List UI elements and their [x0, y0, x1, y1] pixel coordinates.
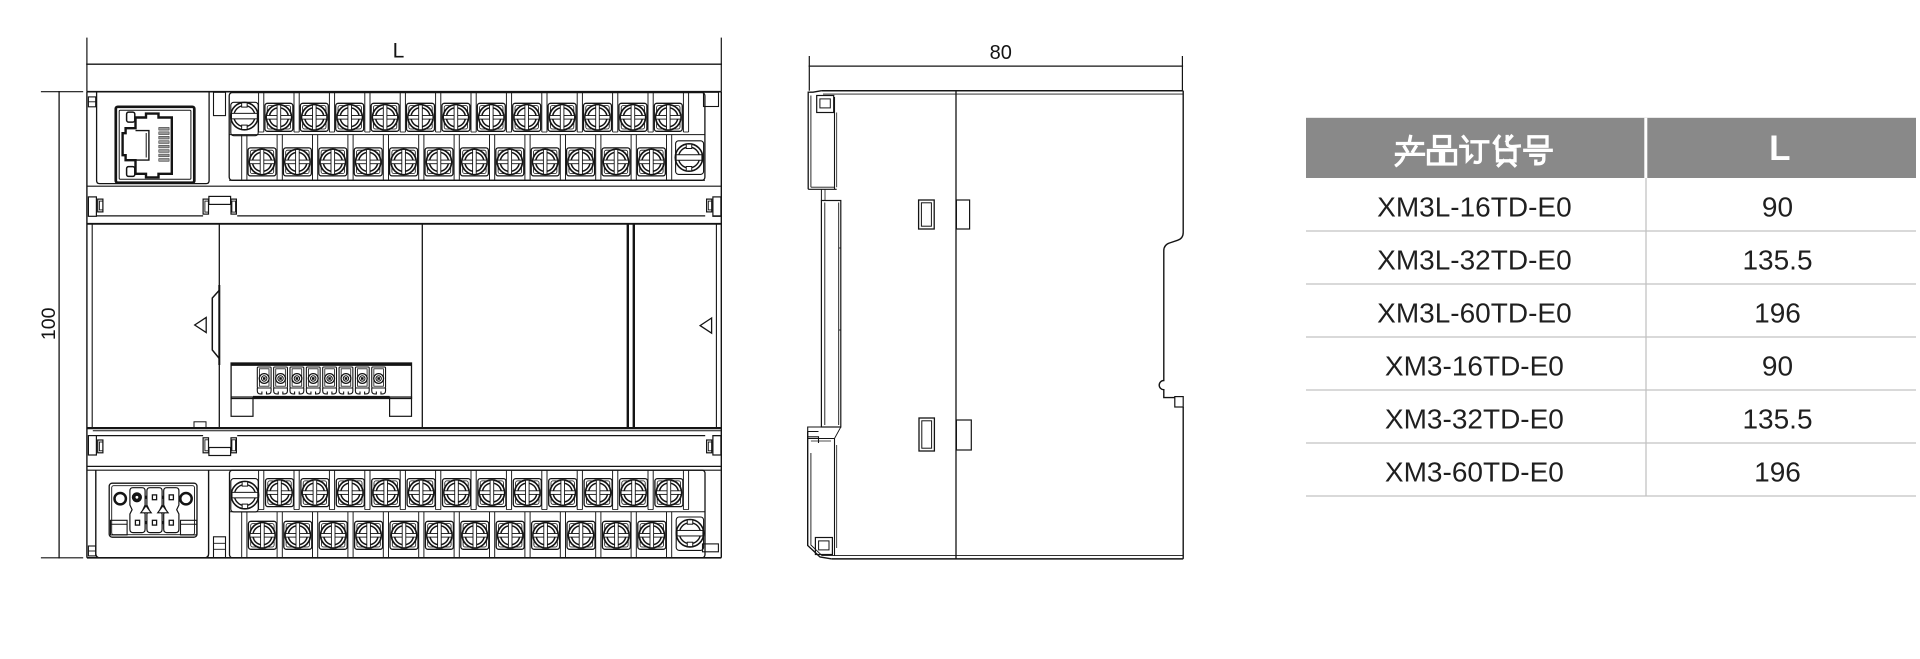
svg-text:XM3L-60TD-E0: XM3L-60TD-E0: [1377, 298, 1572, 329]
svg-text:XM3-16TD-E0: XM3-16TD-E0: [1385, 351, 1564, 382]
svg-text:90: 90: [1762, 351, 1793, 382]
svg-text:196: 196: [1754, 457, 1801, 488]
svg-text:196: 196: [1754, 298, 1801, 329]
svg-text:L: L: [1769, 129, 1790, 168]
svg-text:80: 80: [990, 42, 1012, 64]
svg-text:L: L: [393, 40, 405, 63]
svg-text:90: 90: [1762, 192, 1793, 223]
svg-text:135.5: 135.5: [1742, 245, 1812, 276]
svg-text:100: 100: [38, 307, 60, 340]
svg-text:135.5: 135.5: [1742, 404, 1812, 435]
svg-text:XM3-60TD-E0: XM3-60TD-E0: [1385, 457, 1564, 488]
svg-text:XM3-32TD-E0: XM3-32TD-E0: [1385, 404, 1564, 435]
svg-text:XM3L-16TD-E0: XM3L-16TD-E0: [1377, 192, 1572, 223]
svg-text:XM3L-32TD-E0: XM3L-32TD-E0: [1377, 245, 1572, 276]
